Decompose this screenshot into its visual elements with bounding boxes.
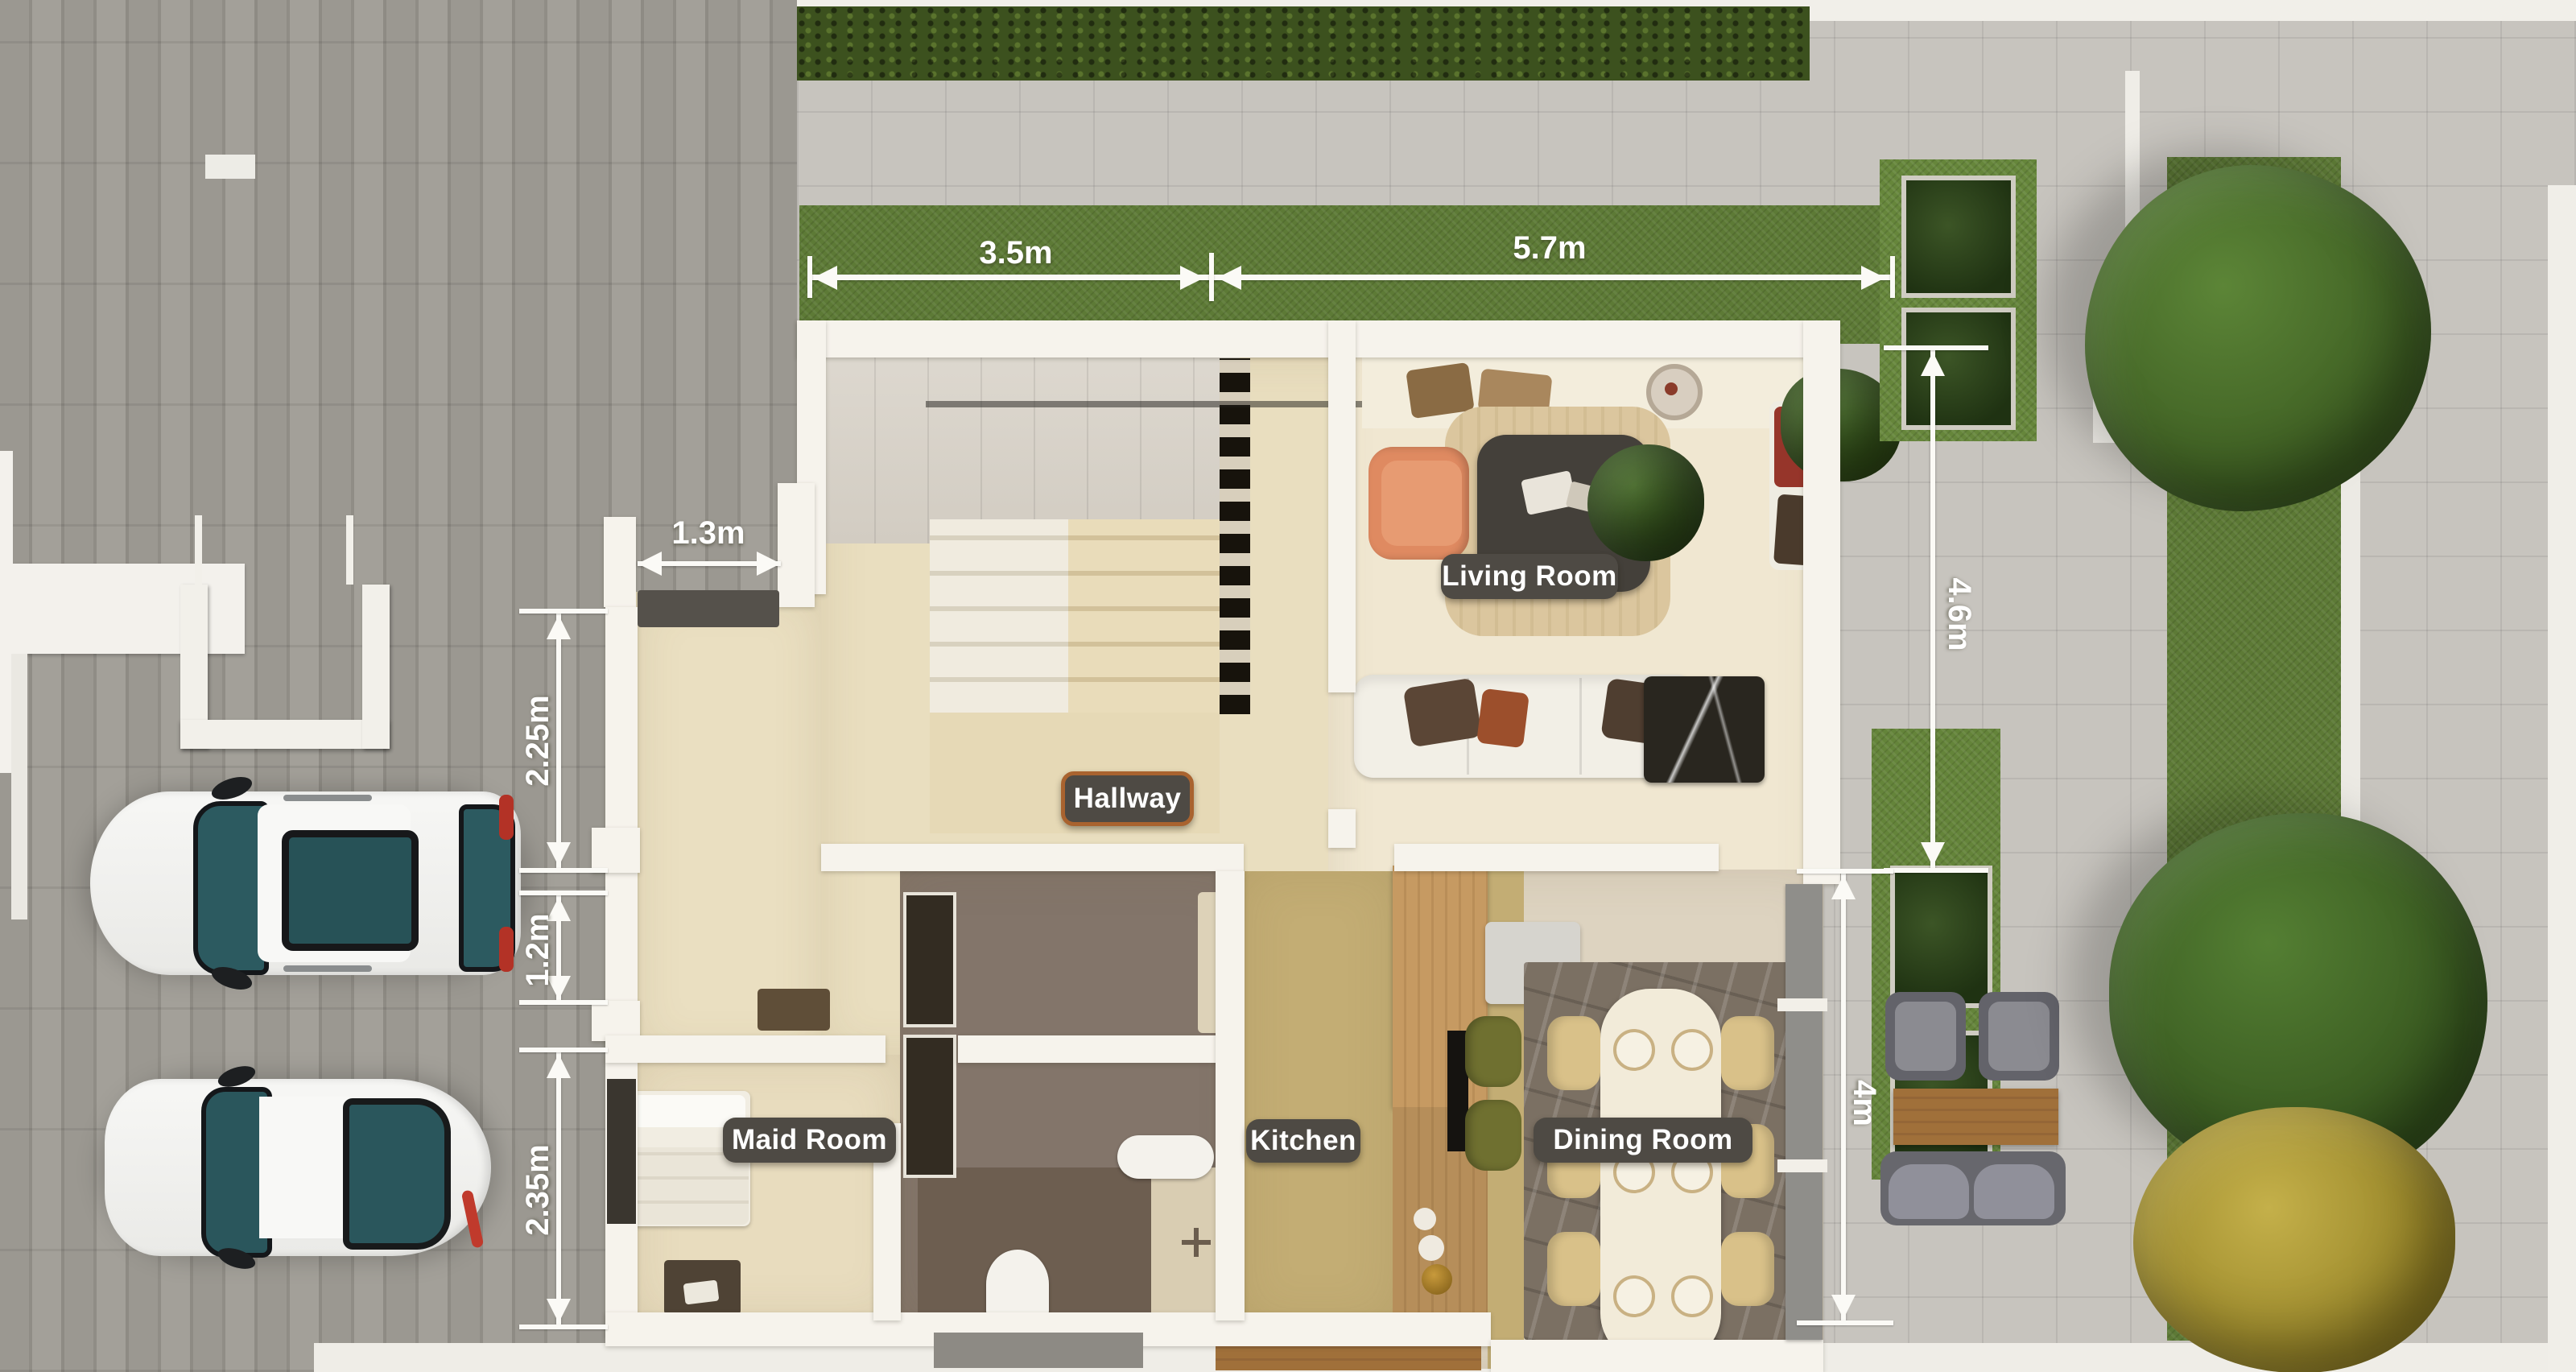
- dimension-arrow: [1921, 352, 1945, 376]
- shoe-cabinet: [758, 989, 830, 1031]
- u-planter-bottom: [180, 720, 390, 749]
- dimension-arrow: [638, 552, 662, 576]
- toilet: [1117, 1135, 1214, 1179]
- hall-floor-entry: [634, 592, 821, 1056]
- wardrobe: [903, 892, 956, 1027]
- dimension-cap: [519, 609, 608, 614]
- hallway-label: Hallway: [1061, 771, 1194, 826]
- plate: [1613, 1275, 1655, 1317]
- dimension-arrow: [1180, 266, 1204, 290]
- bar-stool-green: [1465, 1016, 1521, 1087]
- wall-cap-tick: [1777, 998, 1827, 1011]
- dimension-cap: [1890, 256, 1895, 298]
- dim-label-1-3m: 1.3m: [652, 514, 765, 552]
- maid-window: [607, 1079, 636, 1224]
- dresser-item: [683, 1280, 720, 1305]
- dining-chair: [1721, 1016, 1774, 1090]
- sofa-pillow: [1476, 688, 1529, 749]
- small-slab: [205, 155, 255, 179]
- dim-label-1-2m: 1.2m: [518, 902, 557, 998]
- car-taillight: [499, 795, 514, 840]
- wall-bottom-dining: [1491, 1340, 1823, 1372]
- dimension-arrow: [1831, 1295, 1856, 1319]
- wall-top: [797, 320, 1807, 357]
- dim-label-4-6m: 4.6m: [1940, 554, 1979, 675]
- decor-basket: [1406, 362, 1475, 419]
- dimension-line: [1930, 350, 1935, 870]
- dimension-cap: [519, 1048, 608, 1052]
- wall-stub-jut: [592, 828, 640, 873]
- stair-closet-panels: [821, 354, 1240, 543]
- wall-hall-living: [1328, 320, 1356, 692]
- dimension-arrow: [547, 1054, 571, 1078]
- dimension-arrow: [1217, 266, 1241, 290]
- wall-bath-top: [958, 1035, 1222, 1063]
- dimension-arrow: [547, 615, 571, 639]
- outdoor-sofa-cushion: [1889, 1164, 1969, 1219]
- curb-line-below: [11, 654, 27, 919]
- suv-car: [90, 785, 525, 982]
- bar-stool-green: [1465, 1100, 1521, 1171]
- planter-shrub: [1901, 308, 2016, 430]
- staircase-left-flight: [930, 519, 1068, 713]
- wall-right-dining-gray: [1785, 884, 1823, 1340]
- curb-slab: [6, 564, 245, 654]
- entry-mat: [638, 590, 779, 627]
- wall-maid-top: [605, 1035, 885, 1063]
- outdoor-chair-cushion: [1988, 1002, 2050, 1071]
- decor-dish: [1414, 1208, 1436, 1230]
- dimension-line: [809, 275, 1894, 280]
- dimension-arrow: [547, 1299, 571, 1323]
- dining-chair: [1547, 1232, 1600, 1306]
- dim-label-4m: 4m: [1845, 1055, 1884, 1151]
- dining-room-label: Dining Room: [1534, 1118, 1752, 1163]
- wall-left-lower: [605, 607, 638, 1337]
- plate: [1671, 1275, 1713, 1317]
- dining-chair: [1721, 1232, 1774, 1306]
- sofa-seam: [1579, 678, 1582, 775]
- dimension-cap: [1884, 868, 1988, 873]
- dimension-arrow: [547, 842, 571, 866]
- u-planter-prong-left: [195, 515, 202, 585]
- louver-screen: [1220, 358, 1250, 714]
- kitchen-label: Kitchen: [1246, 1119, 1360, 1163]
- shower-drain: [1182, 1228, 1211, 1257]
- decor-plate-dot: [1665, 382, 1678, 395]
- car-roof-rail: [283, 795, 372, 801]
- kitchen-floor: [1244, 871, 1393, 1320]
- outdoor-chair-cushion: [1895, 1002, 1956, 1071]
- wall-cap-tick: [1777, 1159, 1827, 1172]
- wardrobe: [903, 1035, 956, 1178]
- planter-shrub: [1890, 866, 1992, 1008]
- side-door-mat: [934, 1333, 1143, 1368]
- marble-side-table: [1644, 676, 1765, 783]
- dimension-cap: [519, 1000, 608, 1005]
- plate: [1671, 1029, 1713, 1071]
- right-edge-curb: [2548, 185, 2576, 1372]
- u-planter-right: [362, 585, 390, 749]
- sofa-pillow: [1403, 678, 1482, 748]
- dimension-cap: [519, 891, 608, 895]
- dim-label-2-35m: 2.35m: [518, 1130, 557, 1250]
- wall-bath-kitchen: [1216, 871, 1245, 1320]
- yellow-tree-bottom: [2133, 1107, 2455, 1372]
- outdoor-sofa-cushion: [1974, 1164, 2054, 1219]
- dimension-cap: [1209, 253, 1214, 301]
- kitchen-deck-strip: [1216, 1343, 1481, 1370]
- dimension-arrow: [1831, 875, 1856, 899]
- dimension-cap: [519, 1324, 608, 1329]
- dimension-cap: [1884, 345, 1988, 350]
- car-rear-glass: [343, 1098, 451, 1250]
- car-sunroof: [282, 830, 419, 951]
- planter-shrub: [1901, 176, 2016, 298]
- dimension-arrow: [1861, 266, 1885, 290]
- dim-label-3-5m: 3.5m: [952, 233, 1080, 272]
- dimension-cap: [1797, 1320, 1893, 1325]
- car-taillight: [499, 927, 514, 972]
- u-planter-prong-right: [346, 515, 353, 585]
- wall-mid-horizontal: [821, 844, 1244, 871]
- staircase-right-flight: [1068, 519, 1220, 713]
- sedan-car: [105, 1071, 495, 1264]
- wall-hall-living: [1328, 809, 1356, 848]
- dimension-arrow: [813, 266, 837, 290]
- dimension-arrow: [757, 552, 781, 576]
- outdoor-table: [1893, 1089, 2058, 1145]
- toilet: [986, 1250, 1049, 1319]
- living-room-label: Living Room: [1441, 554, 1618, 599]
- dimension-arrow: [1921, 842, 1945, 866]
- dining-chair: [1547, 1016, 1600, 1090]
- dim-label-5-7m: 5.7m: [1485, 229, 1614, 267]
- wall-right-living: [1803, 320, 1840, 884]
- floor-plan-render: Living Room Hallway Maid Room Kitchen Di…: [0, 0, 2576, 1372]
- car-roof: [259, 1097, 349, 1238]
- dimension-cap: [519, 868, 608, 873]
- orange-armchair-seat: [1381, 461, 1462, 546]
- front-hedge: [797, 6, 1810, 81]
- maid-room-label: Maid Room: [723, 1118, 896, 1163]
- decor-gold-bowl: [1422, 1264, 1452, 1295]
- dimension-cap: [1797, 869, 1893, 874]
- dimension-cap: [807, 256, 812, 298]
- plate: [1613, 1029, 1655, 1071]
- wall-mid-horizontal: [1394, 844, 1719, 871]
- entry-wall-stub: [778, 483, 815, 607]
- dim-label-2-25m: 2.25m: [518, 680, 557, 801]
- entry-wall-stub: [604, 517, 636, 607]
- car-roof-rail: [283, 965, 372, 972]
- decor-dish: [1418, 1235, 1444, 1261]
- table-plant: [1587, 444, 1704, 561]
